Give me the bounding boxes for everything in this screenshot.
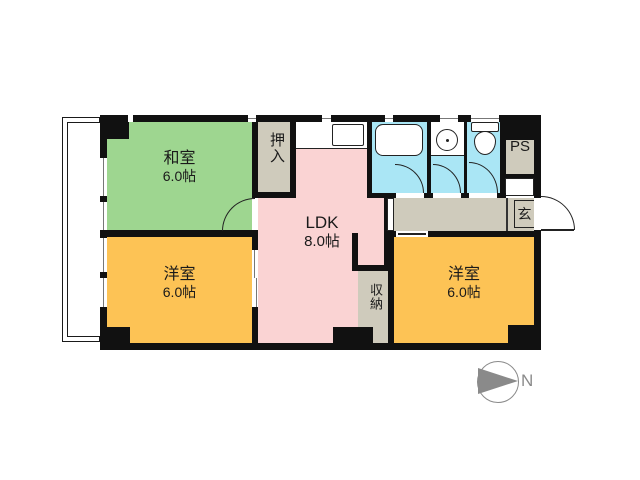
label-storage: 収納 bbox=[363, 283, 385, 333]
window-line bbox=[103, 158, 104, 196]
label-pipe-space: PS bbox=[506, 138, 534, 155]
room-size: 6.0帖 bbox=[107, 284, 252, 300]
room-size: 8.0帖 bbox=[277, 233, 367, 250]
window bbox=[128, 115, 133, 122]
window-line bbox=[322, 118, 331, 119]
pillar bbox=[107, 122, 129, 139]
north-label: N bbox=[521, 371, 533, 391]
entry-door-opening bbox=[534, 198, 541, 230]
floor-plan: 玄 和室 6.0帖 LDK 8.0帖 bbox=[0, 0, 640, 480]
pillar bbox=[508, 325, 534, 343]
wall-outer-right bbox=[534, 115, 541, 350]
hallway bbox=[394, 198, 534, 231]
label-western-left: 洋室 6.0帖 bbox=[107, 266, 252, 300]
wall-outer-left bbox=[100, 115, 107, 350]
window-line bbox=[248, 118, 256, 119]
label-ldk: LDK 8.0帖 bbox=[277, 213, 367, 250]
balcony-inner-line bbox=[67, 122, 100, 337]
room-name: LDK bbox=[277, 213, 367, 233]
label-western-right: 洋室 6.0帖 bbox=[394, 266, 534, 300]
entry-door-leaf bbox=[541, 229, 574, 231]
shoe-cabinet bbox=[505, 178, 534, 196]
wall-segment bbox=[252, 192, 296, 198]
genkan-label: 玄 bbox=[518, 204, 532, 224]
kitchen-sink-icon bbox=[332, 124, 364, 146]
entry-door-arc-icon bbox=[541, 196, 575, 230]
label-washitsu: 和室 6.0帖 bbox=[107, 150, 252, 184]
wall-outer-bottom bbox=[100, 343, 541, 350]
hall-door bbox=[387, 198, 394, 231]
window-line bbox=[103, 238, 104, 272]
window-line bbox=[103, 278, 104, 307]
room-name: 洋室 bbox=[107, 266, 252, 284]
sliding-door-line bbox=[398, 233, 426, 235]
room-name: 和室 bbox=[107, 150, 252, 168]
genkan-step-line bbox=[506, 198, 508, 231]
room-name: 洋室 bbox=[394, 266, 534, 284]
north-arrow-icon bbox=[478, 368, 518, 394]
bathtub-icon bbox=[375, 124, 423, 156]
window-line bbox=[103, 202, 104, 230]
room-size: 6.0帖 bbox=[394, 284, 534, 300]
pillar bbox=[107, 327, 130, 343]
room-size: 6.0帖 bbox=[107, 168, 252, 184]
window-line bbox=[385, 118, 393, 119]
washbasin-drain-dot bbox=[446, 139, 449, 142]
sliding-door-line bbox=[256, 278, 257, 307]
window-line bbox=[440, 118, 458, 119]
label-oshiire: 押入 bbox=[263, 132, 287, 190]
genkan-box: 玄 bbox=[514, 200, 535, 228]
window-line bbox=[471, 118, 499, 119]
sliding-door-line bbox=[254, 250, 255, 278]
wall-segment bbox=[100, 230, 258, 237]
